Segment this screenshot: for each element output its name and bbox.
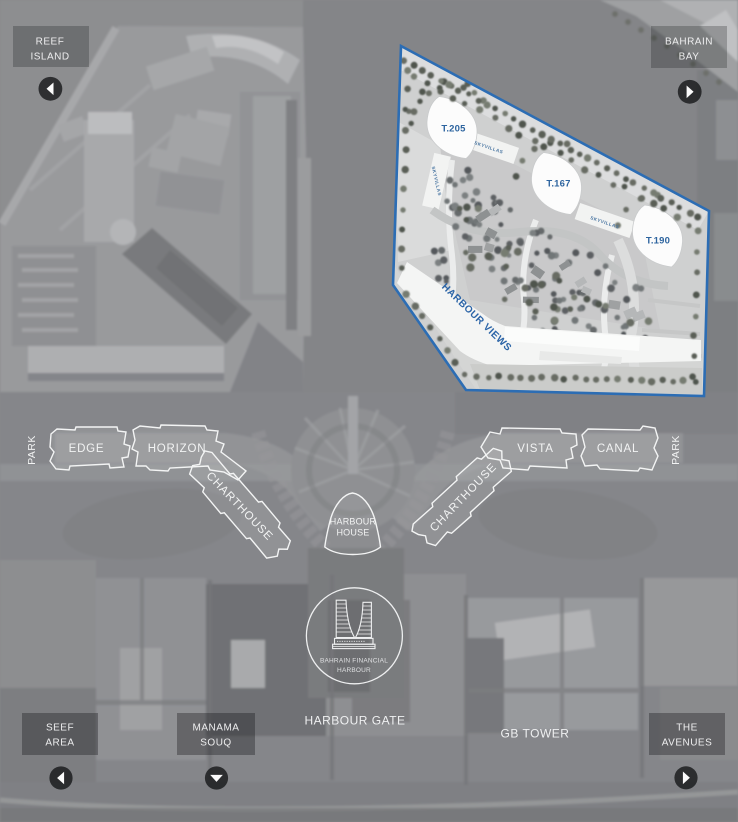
svg-text:MANAMA: MANAMA <box>193 723 240 734</box>
svg-text:VISTA: VISTA <box>517 443 553 455</box>
svg-text:HOUSE: HOUSE <box>336 528 369 538</box>
svg-text:PARK: PARK <box>670 435 682 465</box>
svg-text:BAHRAIN FINANCIAL: BAHRAIN FINANCIAL <box>320 658 388 665</box>
svg-text:T.190: T.190 <box>646 236 670 247</box>
svg-text:REEF: REEF <box>36 37 65 48</box>
svg-text:ISLAND: ISLAND <box>30 52 69 63</box>
svg-text:T.205: T.205 <box>441 124 466 135</box>
svg-text:GB TOWER: GB TOWER <box>501 727 570 741</box>
svg-text:AREA: AREA <box>45 738 74 749</box>
svg-text:CANAL: CANAL <box>597 443 639 455</box>
svg-text:BAHRAIN: BAHRAIN <box>665 37 713 48</box>
svg-text:HORIZON: HORIZON <box>148 443 207 455</box>
svg-text:HARBOUR GATE: HARBOUR GATE <box>304 714 405 728</box>
svg-text:T.167: T.167 <box>546 179 570 190</box>
svg-text:HARBOUR: HARBOUR <box>337 667 371 674</box>
svg-text:AVENUES: AVENUES <box>662 738 713 749</box>
svg-text:THE: THE <box>676 723 698 734</box>
svg-text:HARBOUR: HARBOUR <box>330 517 377 527</box>
svg-text:EDGE: EDGE <box>69 443 105 455</box>
svg-text:SEEF: SEEF <box>46 723 74 734</box>
svg-text:BAY: BAY <box>679 52 700 63</box>
svg-text:PARK: PARK <box>26 435 38 465</box>
svg-text:SOUQ: SOUQ <box>200 738 231 749</box>
